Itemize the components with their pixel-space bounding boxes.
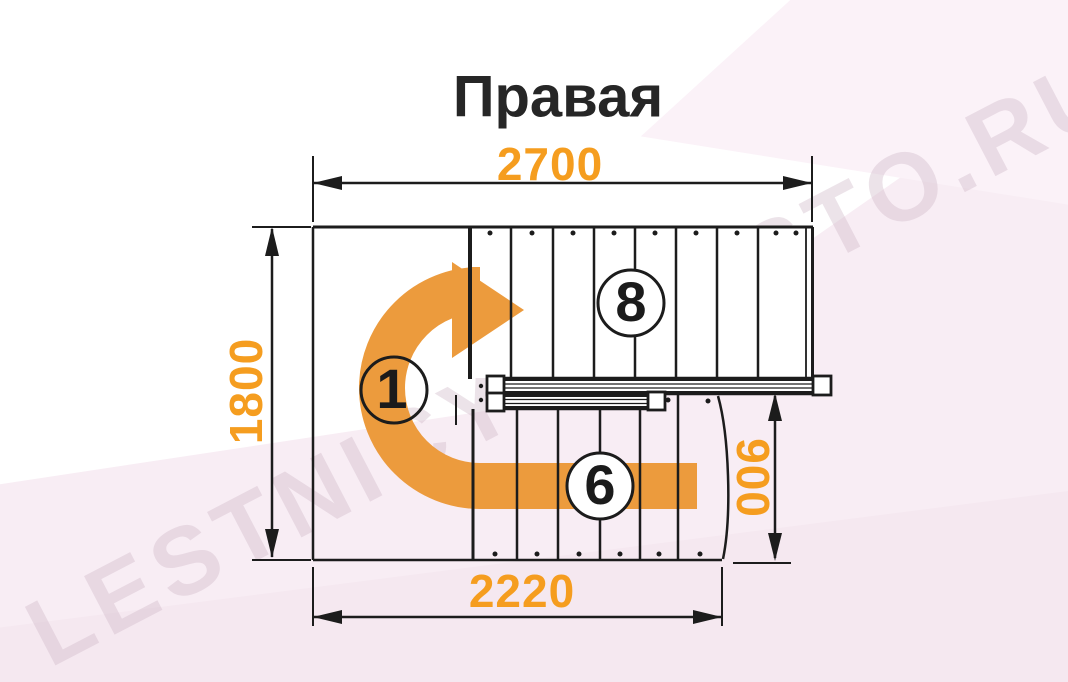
staircase-plan-page: LESTNICY-PROSTO.RU [0, 0, 1068, 682]
dimension-label-right: 900 [726, 438, 780, 518]
dimension-label-top: 2700 [497, 137, 603, 191]
dimension-label-left: 1800 [219, 338, 273, 444]
beam-bracket [648, 392, 665, 410]
step-count-upper: 8 [615, 269, 646, 334]
step-count-start: 1 [376, 356, 407, 421]
page-title: Правая [453, 64, 663, 131]
beam-bracket [487, 393, 504, 411]
step-count-lower: 6 [584, 452, 615, 517]
beam-bracket [813, 376, 831, 395]
dimension-label-bottom: 2220 [469, 564, 575, 618]
